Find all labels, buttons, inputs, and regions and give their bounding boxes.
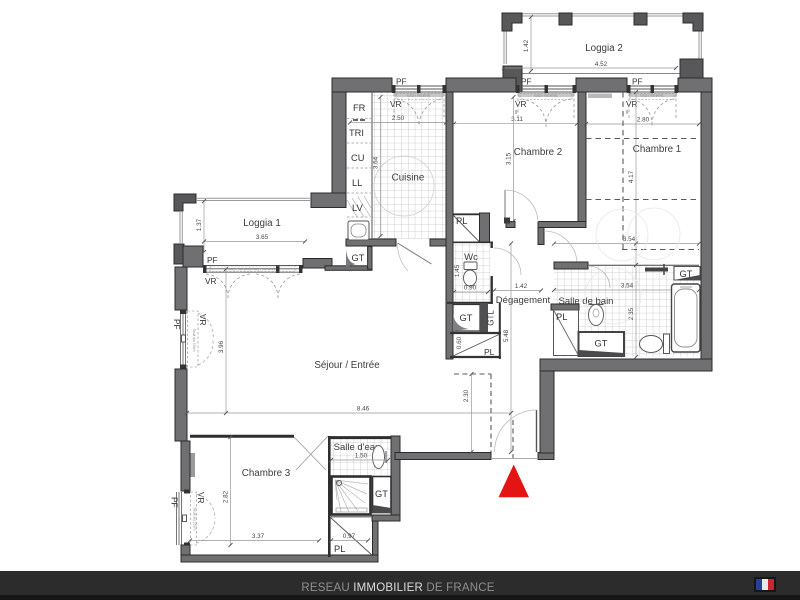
svg-text:PL: PL <box>556 312 567 322</box>
svg-text:Seuil alu +2cm: Seuil alu +2cm <box>534 94 557 98</box>
svg-text:Chambre 1: Chambre 1 <box>633 144 681 155</box>
svg-text:PL: PL <box>334 544 345 554</box>
svg-text:4.17: 4.17 <box>628 170 635 183</box>
svg-text:VR: VR <box>196 492 206 504</box>
svg-text:VR: VR <box>390 99 402 109</box>
svg-text:3.37: 3.37 <box>252 533 265 540</box>
svg-text:Loggia 2: Loggia 2 <box>585 43 623 54</box>
svg-text:GT: GT <box>460 313 473 323</box>
svg-text:3.65: 3.65 <box>256 234 269 241</box>
svg-text:PF: PF <box>632 77 643 87</box>
svg-text:TRI: TRI <box>349 128 364 138</box>
svg-text:2.30: 2.30 <box>463 389 470 402</box>
svg-text:PF: PF <box>172 319 182 330</box>
svg-text:1.50: 1.50 <box>355 453 368 460</box>
svg-text:VR: VR <box>515 99 527 109</box>
svg-text:RESEAU IMMOBILIER DE FRANCE: RESEAU IMMOBILIER DE FRANCE <box>301 582 494 594</box>
svg-text:GT: GT <box>375 489 388 499</box>
svg-text:0.60: 0.60 <box>456 336 463 349</box>
svg-text:3.64: 3.64 <box>373 156 380 169</box>
svg-text:Séjour / Entrée: Séjour / Entrée <box>314 360 380 371</box>
svg-text:3.11: 3.11 <box>511 116 523 123</box>
svg-text:Wc: Wc <box>464 252 478 263</box>
svg-text:PF: PF <box>396 77 407 87</box>
svg-text:5.48: 5.48 <box>503 329 510 342</box>
svg-text:VR: VR <box>205 276 217 286</box>
svg-text:PL: PL <box>484 347 495 357</box>
svg-text:Dégagement: Dégagement <box>496 295 551 306</box>
svg-text:GTL: GTL <box>487 310 496 326</box>
svg-text:Seuil alu 15cm: Seuil alu 15cm <box>193 508 197 531</box>
svg-text:Seuil alu +2cm Seuil alu +2cm: Seuil alu +2cm Seuil alu +2cm <box>228 267 275 271</box>
svg-text:0.97: 0.97 <box>343 533 356 540</box>
svg-text:4.52: 4.52 <box>595 61 608 68</box>
svg-text:1.45: 1.45 <box>454 264 461 277</box>
svg-text:GT: GT <box>352 253 365 263</box>
svg-text:PF: PF <box>207 255 218 265</box>
svg-text:2.82: 2.82 <box>223 490 230 503</box>
svg-text:8.46: 8.46 <box>357 406 370 413</box>
svg-text:3.15: 3.15 <box>506 152 513 165</box>
svg-text:PL: PL <box>456 216 467 226</box>
svg-text:Seuil alu 15cm: Seuil alu 15cm <box>192 329 196 352</box>
svg-text:Loggia 1: Loggia 1 <box>243 218 281 229</box>
svg-text:2.80: 2.80 <box>637 117 650 124</box>
svg-text:Seuil alu +2cm: Seuil alu +2cm <box>640 94 663 98</box>
svg-text:PF: PF <box>170 497 180 508</box>
svg-text:FR: FR <box>353 103 366 113</box>
svg-text:1.42: 1.42 <box>515 283 528 290</box>
svg-text:GT: GT <box>595 339 608 349</box>
svg-text:Chambre 3: Chambre 3 <box>242 468 291 479</box>
svg-text:Chambre 2: Chambre 2 <box>514 147 562 158</box>
svg-text:GT: GT <box>680 269 693 279</box>
svg-text:3.54: 3.54 <box>621 283 634 290</box>
svg-text:2.35: 2.35 <box>628 307 635 320</box>
svg-text:PF: PF <box>521 77 532 87</box>
svg-text:2.50: 2.50 <box>392 115 405 122</box>
svg-text:1.42: 1.42 <box>523 39 530 52</box>
svg-text:3.96: 3.96 <box>218 340 225 353</box>
svg-text:0.90: 0.90 <box>464 285 477 292</box>
svg-text:LL: LL <box>352 178 362 188</box>
svg-text:Seuil alu +2cm: Seuil alu +2cm <box>407 94 430 98</box>
svg-text:LV: LV <box>352 203 363 213</box>
svg-text:CU: CU <box>351 153 364 163</box>
svg-text:Cuisine: Cuisine <box>392 173 425 184</box>
svg-text:1.37: 1.37 <box>196 218 203 231</box>
